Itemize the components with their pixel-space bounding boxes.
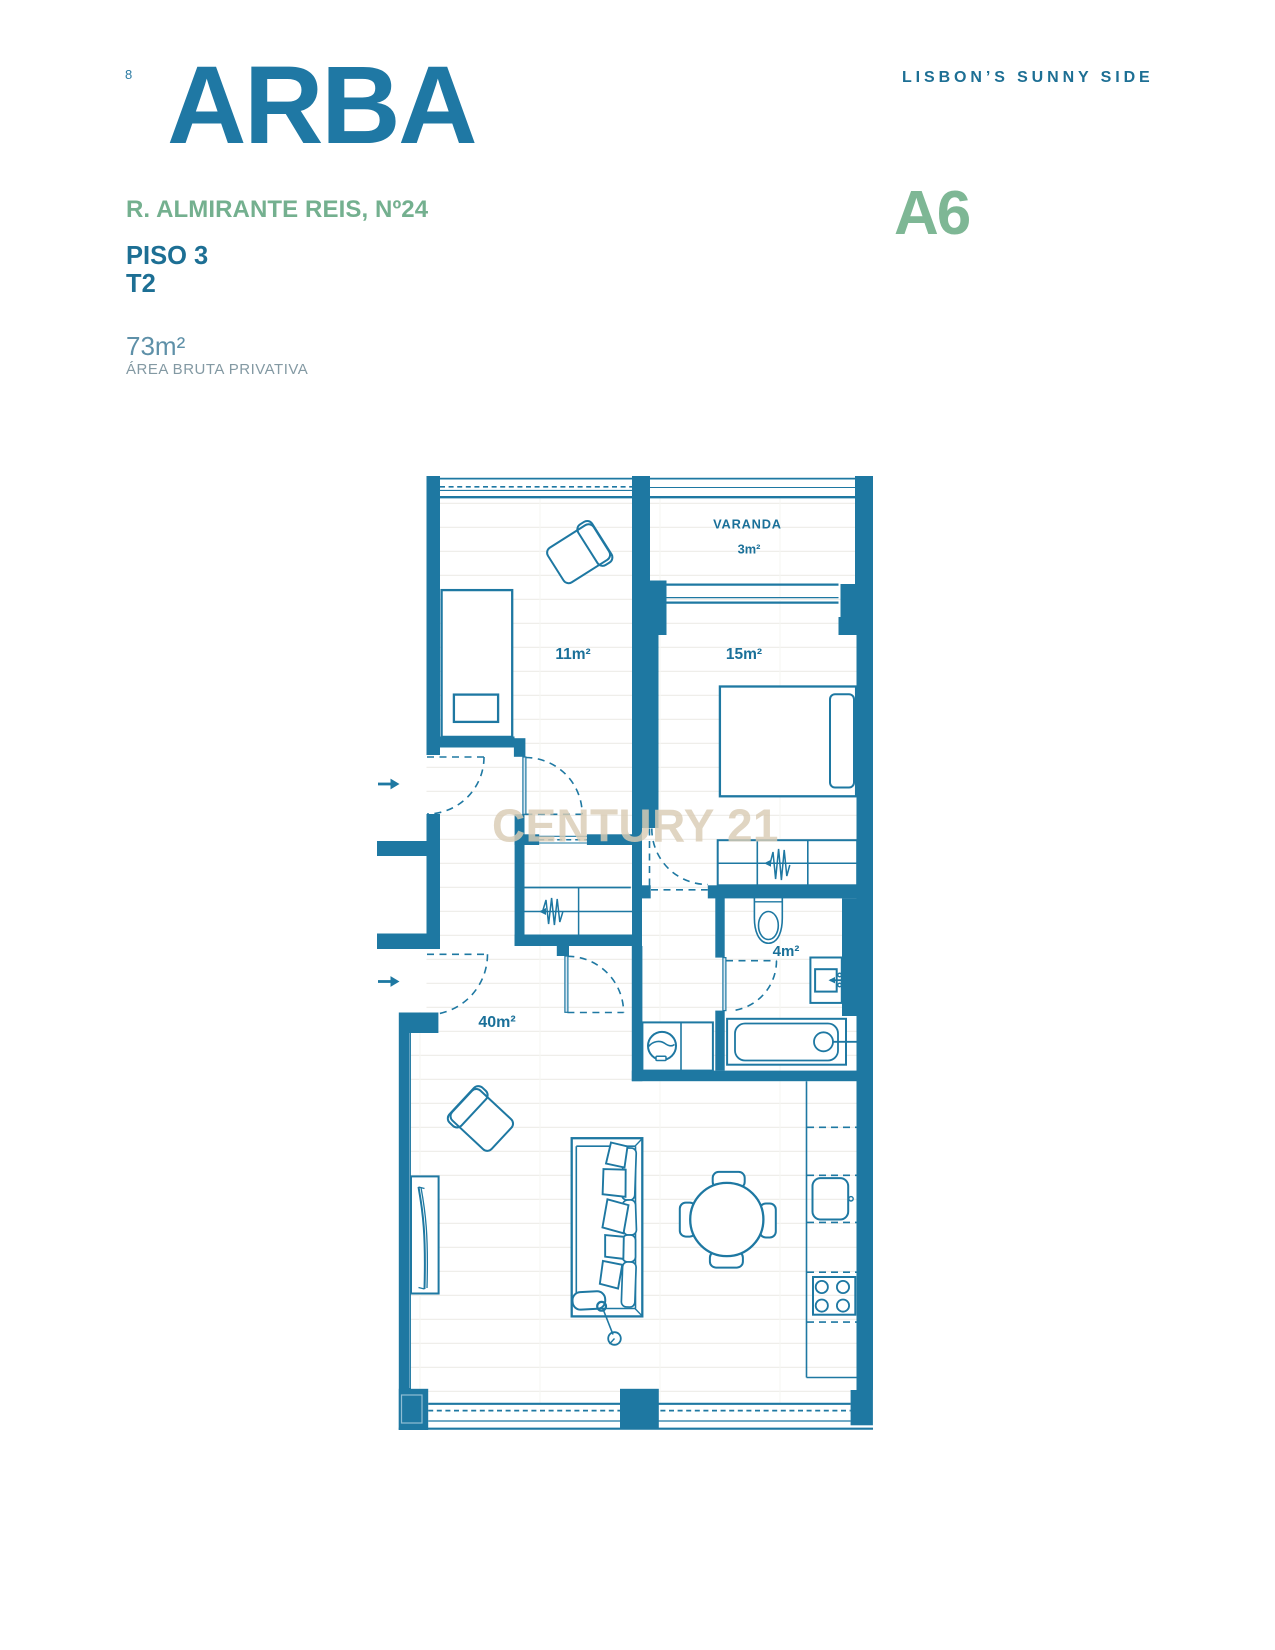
svg-text:40m²: 40m²	[478, 1014, 515, 1031]
svg-text:4m²: 4m²	[773, 943, 800, 960]
svg-text:15m²: 15m²	[726, 646, 762, 663]
svg-text:VARANDA: VARANDA	[713, 517, 782, 532]
svg-text:3m²: 3m²	[738, 542, 761, 557]
svg-text:CENTURY 21: CENTURY 21	[492, 800, 779, 852]
svg-text:11m²: 11m²	[555, 646, 590, 663]
